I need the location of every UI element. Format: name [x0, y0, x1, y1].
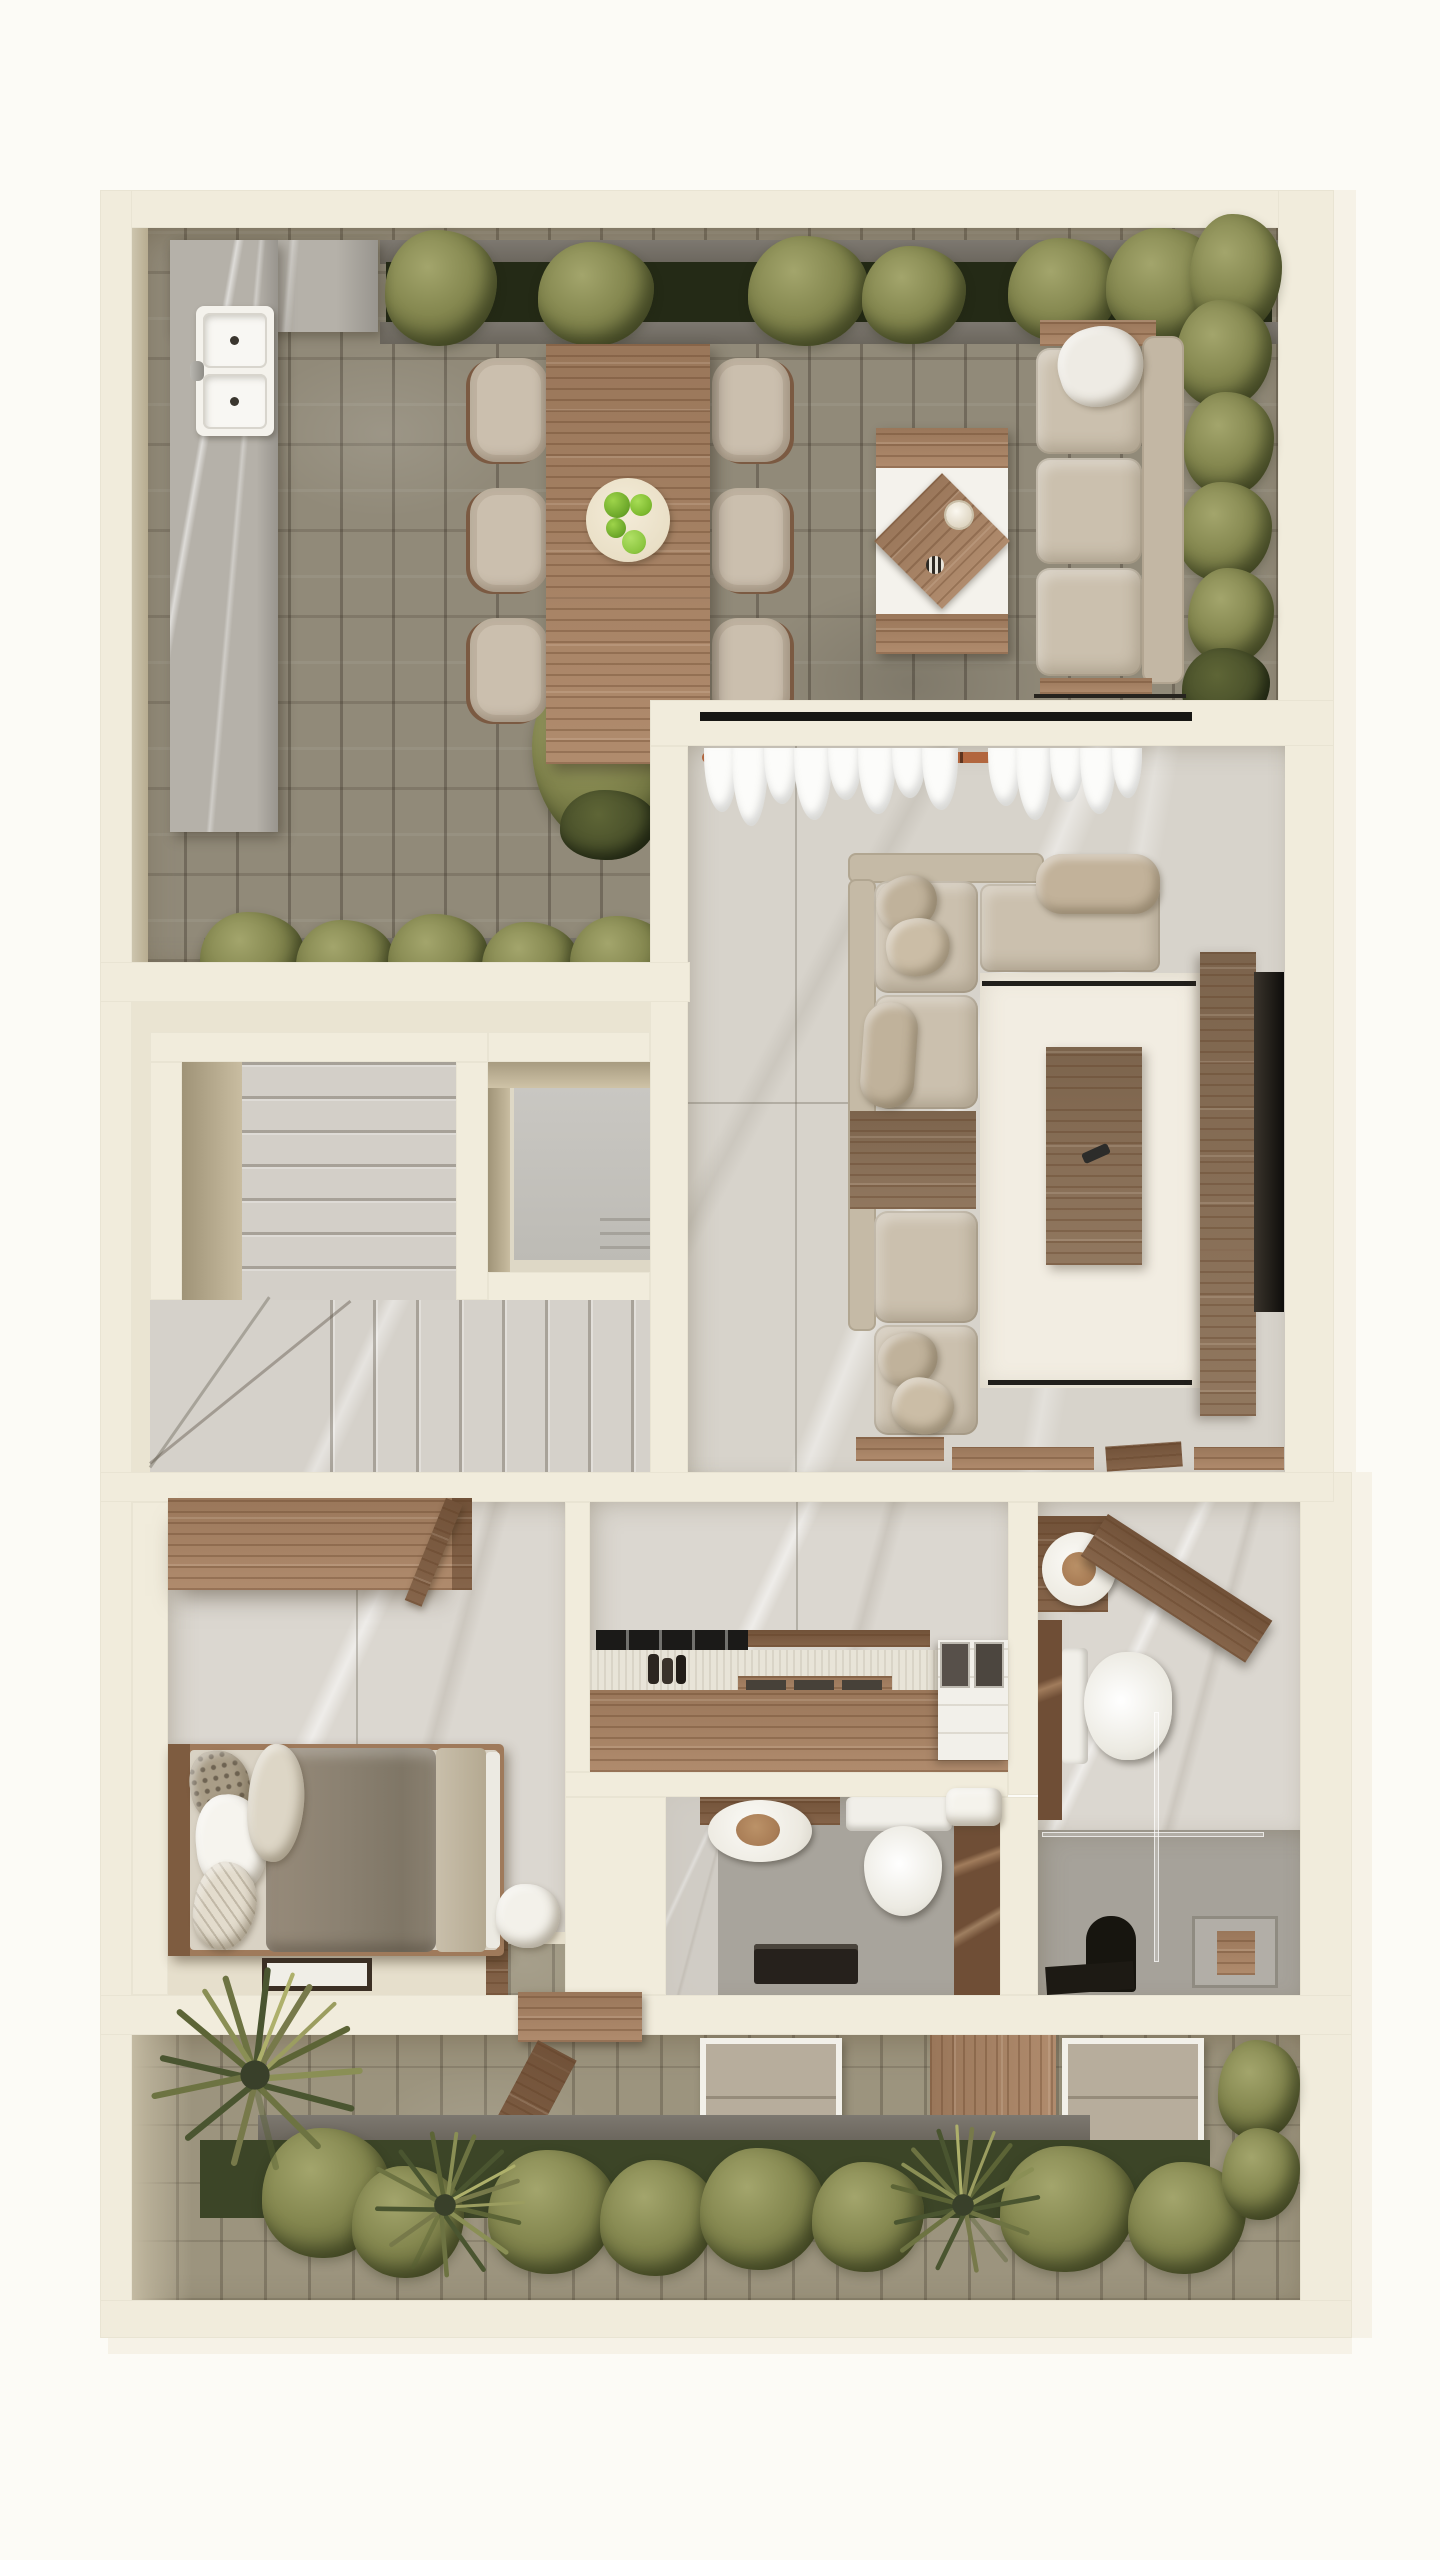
void-step-line [600, 1232, 650, 1235]
kitchen-bath-wall [1008, 1502, 1038, 1795]
void-wall [488, 1032, 650, 1062]
curtain-fold [1080, 748, 1116, 814]
terrace-sofa-seat [1036, 458, 1142, 564]
small-cup [926, 556, 944, 574]
wall-bottom-outer-face [108, 2338, 1352, 2354]
staircase-treads [330, 1300, 650, 1472]
rug-edge-bar [988, 1380, 1192, 1385]
powder-stone-partition [954, 1797, 1000, 1995]
sink-faucet [190, 361, 204, 381]
bedroom-left-inner-wall [132, 1502, 168, 1995]
stairwell-wall [150, 1032, 488, 1062]
wall-right-upper-outer-face [1334, 190, 1356, 1502]
void-wall [488, 1272, 650, 1302]
stairwell-inner-face [182, 1062, 242, 1300]
spice-jar [676, 1655, 686, 1684]
curtain-fold [922, 748, 958, 810]
island-tray-panel [940, 1642, 970, 1688]
wall-right-upper [1278, 190, 1334, 1502]
green-apple [630, 494, 652, 516]
wall-right-lower [1300, 1472, 1352, 2338]
bed-foot-throw [436, 1748, 486, 1952]
wall-tv [1254, 972, 1284, 1312]
curtain-fold [1016, 748, 1052, 820]
media-console [1200, 952, 1256, 1416]
curtain-fold [858, 748, 896, 814]
wall-top [100, 190, 1334, 228]
garden-door-threshold [518, 1992, 642, 2042]
dining-chair [712, 358, 790, 462]
curtain-fold [794, 748, 832, 820]
terrace-sofa-base [1040, 678, 1152, 694]
floor-joint [688, 1102, 848, 1104]
sofa-lumbar-pillow [1036, 854, 1160, 914]
bed-headboard [168, 1744, 190, 1956]
bedroom-wardrobe [168, 1498, 452, 1590]
green-apple [604, 492, 630, 518]
living-left-wall [650, 746, 688, 1502]
void-step-line [600, 1218, 650, 1221]
bed-foot-crumple [496, 1884, 560, 1948]
dining-chair [470, 488, 548, 592]
stairwell-wall [456, 1062, 488, 1300]
sofa-pillow [858, 1000, 919, 1110]
ornamental-grass [360, 2120, 530, 2290]
rolled-towel [1217, 1931, 1255, 1975]
curtain-fold [1112, 748, 1142, 798]
curtain-fold [732, 748, 768, 826]
island-tray-panel [974, 1642, 1004, 1688]
void-inner-face-top [488, 1062, 650, 1088]
lounger-seam [1068, 2096, 1198, 2099]
terrace-sofa-backrest [1142, 336, 1184, 684]
terrace-sofa-seat [1036, 568, 1142, 676]
dining-chair [470, 358, 548, 462]
sofa-side-table [850, 1111, 976, 1209]
terrace-coffee-table-wood-end [876, 614, 1008, 654]
dining-chair [470, 618, 548, 722]
upper-stair-flight [242, 1062, 456, 1300]
stairwell-wall [150, 1062, 182, 1300]
green-apple [622, 530, 646, 554]
kitchen-bottom-wall [565, 1772, 1008, 1797]
sink-drain [230, 336, 239, 345]
window-frame [700, 712, 1192, 721]
spice-jar [662, 1658, 673, 1684]
sectional-sofa-left-rail [848, 879, 876, 1331]
sink-drain [230, 397, 239, 406]
living-top-wall [650, 700, 1334, 746]
powder-basin-bowl [736, 1814, 780, 1846]
powder-right-wall [1000, 1797, 1038, 1995]
floor-joint [795, 746, 797, 1472]
powder-left-wall [565, 1797, 666, 1995]
shower-glass-panel [1042, 1832, 1264, 1837]
console-slab [952, 1447, 1094, 1470]
lounger-seam [706, 2096, 836, 2099]
sofa-seat [874, 1211, 978, 1323]
spice-jar [648, 1654, 659, 1684]
cup [946, 502, 972, 528]
void-step-line [600, 1246, 650, 1249]
bath-stone-partition [1038, 1620, 1062, 1820]
sectional-sofa-back-rail [848, 853, 1044, 883]
outdoor-sink [196, 306, 274, 436]
void-inner-face-left [488, 1088, 510, 1272]
sheer-curtain-left [704, 748, 958, 832]
wall-right-lower-outer-face [1352, 1472, 1372, 2338]
curtain-fold [764, 748, 798, 804]
window-sill-line [1034, 694, 1186, 698]
curtain-fold [892, 748, 926, 798]
terrace-coffee-table-wood-end [876, 428, 1008, 468]
sofa-base-shelf [856, 1437, 944, 1461]
cooktop-back-shelf [748, 1630, 930, 1647]
terrace-left-wall-face [132, 228, 148, 962]
shower-glass-panel [1154, 1712, 1159, 1962]
wall-bottom [100, 2300, 1352, 2338]
ornamental-grass [140, 1960, 370, 2190]
ornamental-grass [878, 2120, 1048, 2290]
dining-chair [712, 488, 790, 592]
black-bench [754, 1944, 858, 1984]
bedroom-kitchen-wall [565, 1502, 590, 1772]
towel-ladder-rack [1192, 1916, 1278, 1988]
terrace-stair-wall [100, 962, 690, 1002]
hanging-towel [946, 1788, 1002, 1826]
garden-threshold-pavers [508, 1944, 565, 1995]
curtain-fold [1050, 748, 1084, 802]
console-slab [1194, 1447, 1284, 1470]
sheer-curtain-right [988, 748, 1142, 828]
slab-joint [796, 1502, 798, 1636]
open-door-leaf [1105, 1441, 1183, 1471]
rug-edge-bar [982, 981, 1196, 986]
curtain-fold [828, 748, 862, 800]
